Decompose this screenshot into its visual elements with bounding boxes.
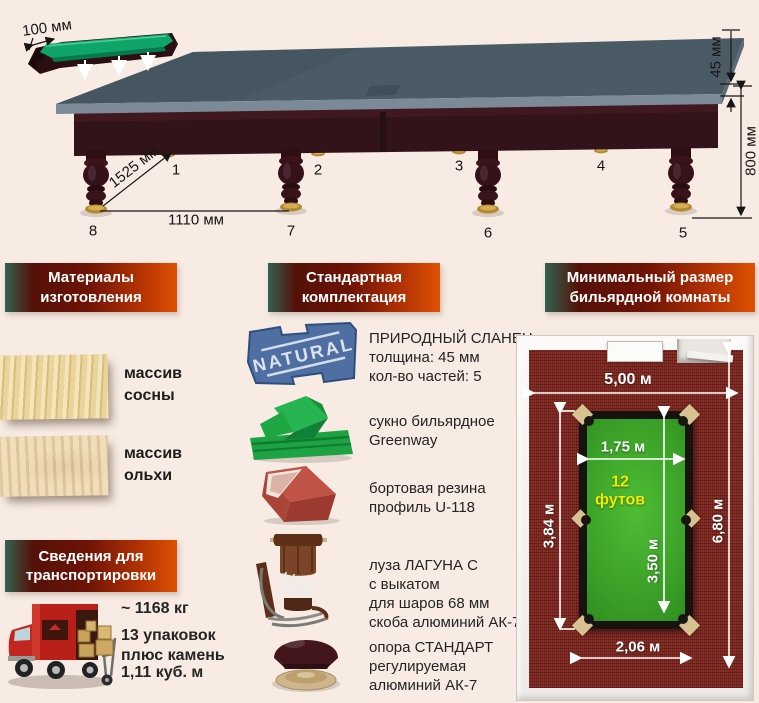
leg-number-3: 3 [455,158,463,175]
cloth-icon [248,394,356,464]
room-length-label: 6,80 м [710,499,727,543]
table-length-label: 3,84 м [541,504,558,548]
section-banner-materials: Материалы изготовления [5,263,177,312]
billiard-spec-infographic: 100 мм 1525 мм 1110 мм 45 мм 800 мм 1 2 … [0,0,759,703]
section-banner-room: Минимальный размер бильярдной комнаты [545,263,755,312]
play-width-label: 1,75 м [601,439,645,456]
delivery-truck-icon [6,596,118,692]
pocket-icon [248,530,348,632]
transport-volume: 1,11 куб. м [121,663,203,683]
leg-number-2: 2 [314,162,322,179]
kit-item-cloth-text: сукно бильярдное Greenway [369,412,495,450]
leg-number-7: 7 [287,223,295,240]
slate-icon: NATURAL [246,320,360,386]
height-label: 800 мм [743,126,759,176]
play-length-label: 3,50 м [645,539,662,583]
leg-span-label: 1110 мм [168,212,224,229]
leg-number-1: 1 [172,162,180,179]
room-width-label: 5,00 м [604,371,651,389]
leg-number-6: 6 [484,225,492,242]
table-size-label: 12 футов [595,474,645,511]
wood-sample-alder [0,435,108,497]
room-diagram: 5,00 м 1,75 м 12 футов 3,50 м 3,84 м 6,8… [516,335,754,701]
kit-item-support-text: опора СТАНДАРТ регулируемая алюминий АК-… [369,638,493,695]
wood-sample-pine [0,354,108,420]
transport-weight: ~ 1168 кг [121,599,189,619]
section-banner-transport: Сведения для транспортировки [5,540,177,592]
kit-item-slate-text: ПРИРОДНЫЙ СЛАНЕЦ толщина: 45 мм кол-во ч… [369,329,533,386]
material-label-pine: массив сосны [124,363,182,406]
kit-item-pocket-text: луза ЛАГУНА С с выкатом для шаров 68 мм … [369,556,521,632]
leg-support-icon [264,628,348,694]
section-banner-kit: Стандартная комплектация [268,263,440,312]
leg-number-8: 8 [89,223,97,240]
leg-number-5: 5 [679,225,687,242]
table-width-label: 2,06 м [616,639,660,656]
slate-thickness-label: 45 мм [708,36,725,77]
billiard-table-illustration: 100 мм 1525 мм 1110 мм 45 мм 800 мм 1 2 … [0,0,759,255]
table-drawing [0,0,759,255]
material-label-alder: массив ольхи [124,443,182,486]
leg-number-4: 4 [597,158,605,175]
cushion-rubber-icon [252,464,344,526]
transport-packages: 13 упаковок плюс камень [121,626,225,666]
kit-item-rubber-text: бортовая резина профиль U-118 [369,479,486,517]
